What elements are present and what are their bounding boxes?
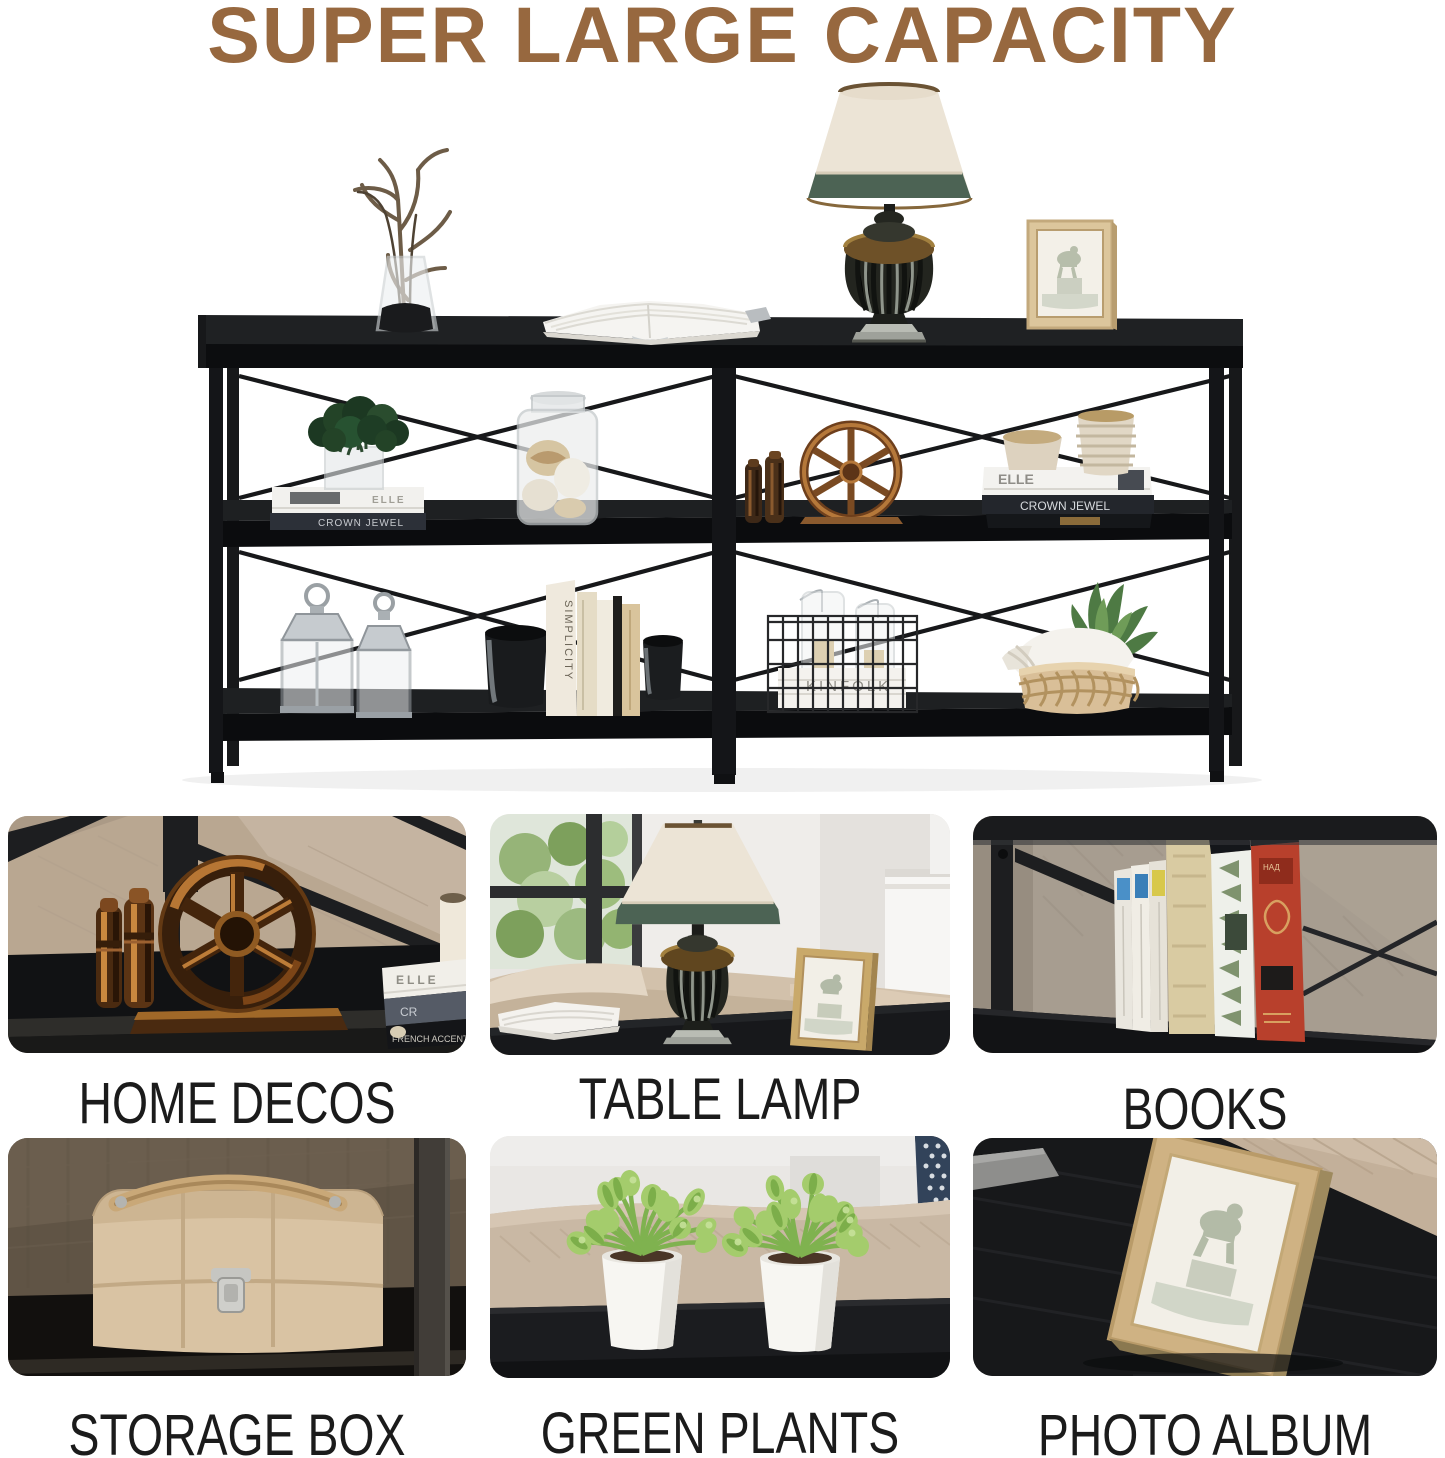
svg-text:НАД: НАД [1263, 863, 1280, 872]
svg-text:ELLE: ELLE [372, 495, 406, 506]
svg-text:KINFOLK: KINFOLK [806, 678, 891, 695]
svg-text:CR: CR [400, 1005, 418, 1019]
svg-text:ELLE: ELLE [396, 973, 439, 987]
svg-text:ELLE: ELLE [998, 471, 1034, 487]
svg-text:SIMPLICITY: SIMPLICITY [562, 600, 574, 681]
svg-text:CROWN JEWEL: CROWN JEWEL [1020, 499, 1110, 513]
svg-text:CROWN JEWEL: CROWN JEWEL [318, 518, 404, 529]
